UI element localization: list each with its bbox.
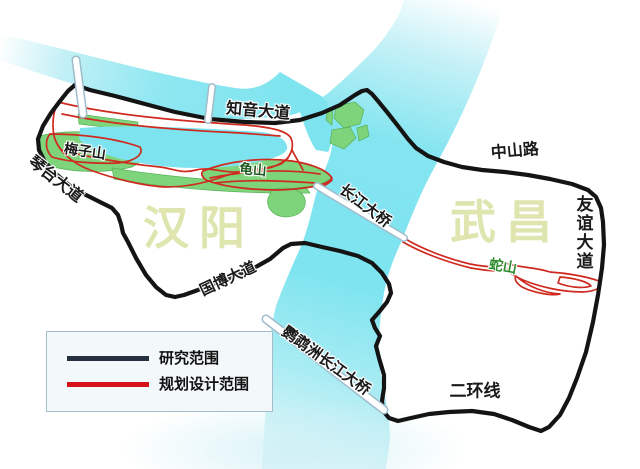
planning-outline-sheshan-inner (558, 277, 591, 287)
district-label-wuchang: 武昌 (450, 199, 562, 245)
study-scope-line-swatch (67, 356, 149, 361)
planning-scope-line-swatch (67, 382, 149, 387)
hill-label-guishan: 龟山 (239, 162, 267, 178)
legend: 研究范围 规划设计范围 (46, 331, 273, 412)
road-label-erhuan: 二环线 (450, 383, 501, 400)
planning-map: 汉阳 武昌 知音大道 中山路 琴台大道 国博大道 二环线 友谊大道 长江大桥 鹦… (0, 0, 640, 469)
district-label-hanyang: 汉阳 (143, 205, 255, 251)
study-scope-label: 研究范围 (159, 351, 219, 366)
legend-item-study-scope: 研究范围 (67, 351, 272, 366)
planning-scope-label: 规划设计范围 (159, 377, 249, 392)
green-knoll-below-guishan (268, 188, 306, 217)
legend-item-planning-scope: 规划设计范围 (67, 377, 272, 392)
han-bridge-east (208, 87, 212, 120)
road-label-youyi: 友谊大道 (575, 195, 592, 271)
